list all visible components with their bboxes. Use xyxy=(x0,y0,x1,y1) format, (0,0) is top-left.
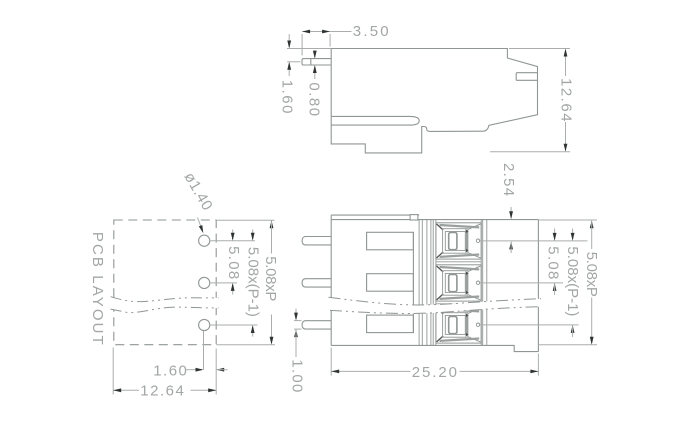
svg-text:2.54: 2.54 xyxy=(500,163,517,197)
svg-text:5.08x(P-1): 5.08x(P-1) xyxy=(244,247,261,317)
svg-text:12.64: 12.64 xyxy=(140,382,185,399)
svg-text:5.08: 5.08 xyxy=(225,246,242,280)
svg-text:25.20: 25.20 xyxy=(412,364,459,381)
svg-text:1.60: 1.60 xyxy=(279,80,296,115)
svg-text:PCB LAYOUT: PCB LAYOUT xyxy=(89,232,106,347)
svg-text:1.00: 1.00 xyxy=(288,359,305,393)
svg-text:5.08xP: 5.08xP xyxy=(583,252,600,297)
svg-text:5.08x(P-1): 5.08x(P-1) xyxy=(564,246,581,316)
svg-text:5.08xP: 5.08xP xyxy=(262,256,279,301)
svg-text:5.08: 5.08 xyxy=(545,246,562,280)
svg-text:3.50: 3.50 xyxy=(353,23,391,40)
svg-text:12.64: 12.64 xyxy=(557,78,574,123)
svg-text:1.60: 1.60 xyxy=(153,362,188,379)
svg-text:ø1.40: ø1.40 xyxy=(181,170,216,214)
svg-text:0.80: 0.80 xyxy=(305,82,322,117)
